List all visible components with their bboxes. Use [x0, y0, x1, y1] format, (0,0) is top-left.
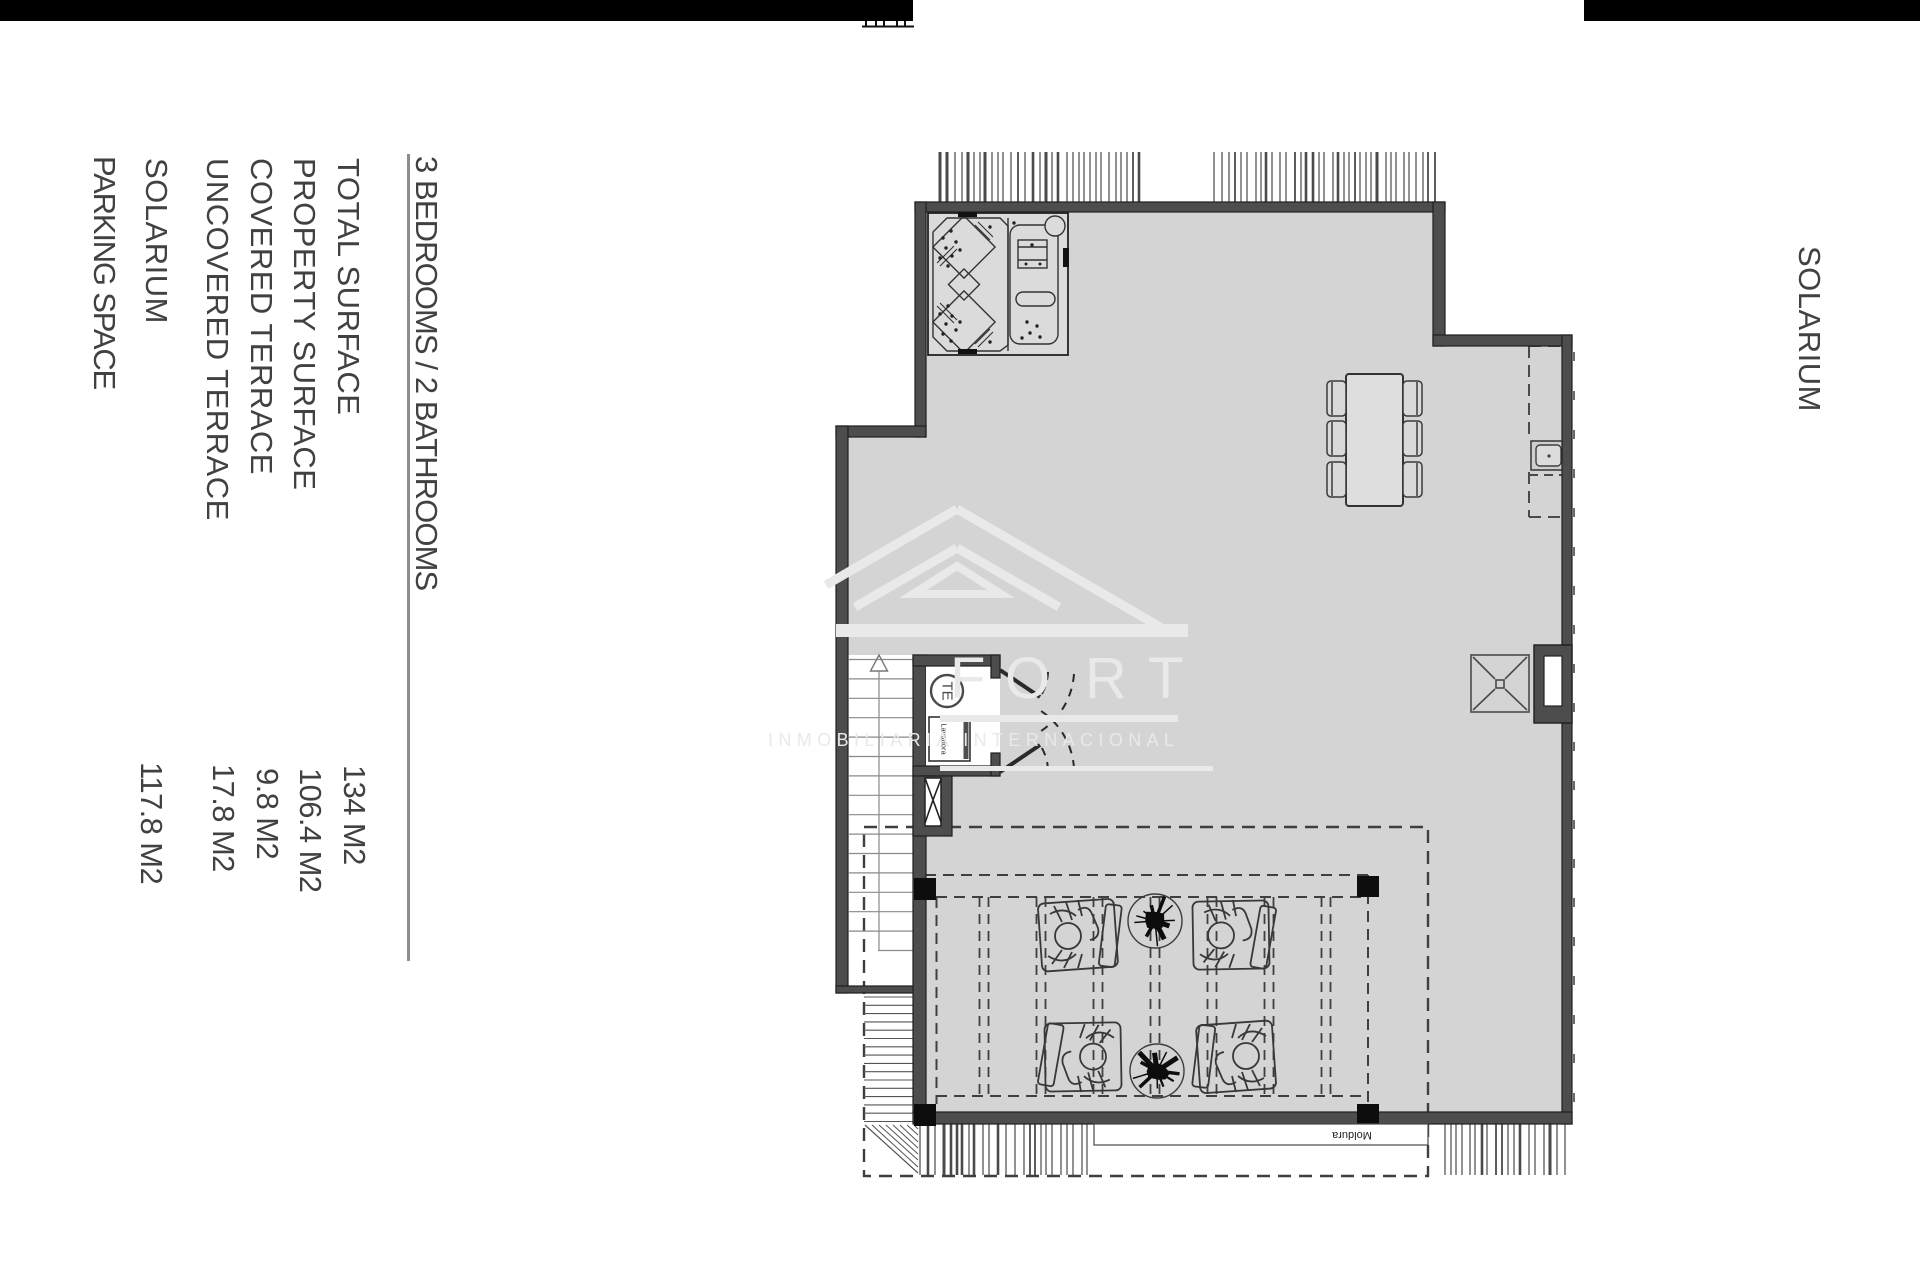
- svg-text:F: F: [950, 646, 985, 711]
- svg-text:O: O: [1005, 646, 1050, 711]
- svg-text:Moldura: Moldura: [1331, 1129, 1372, 1141]
- svg-text:T: T: [1148, 646, 1183, 711]
- svg-text:INMOBILIARIA INTERNACIONAL: INMOBILIARIA INTERNACIONAL: [768, 730, 1179, 750]
- svg-text:R: R: [1085, 646, 1127, 711]
